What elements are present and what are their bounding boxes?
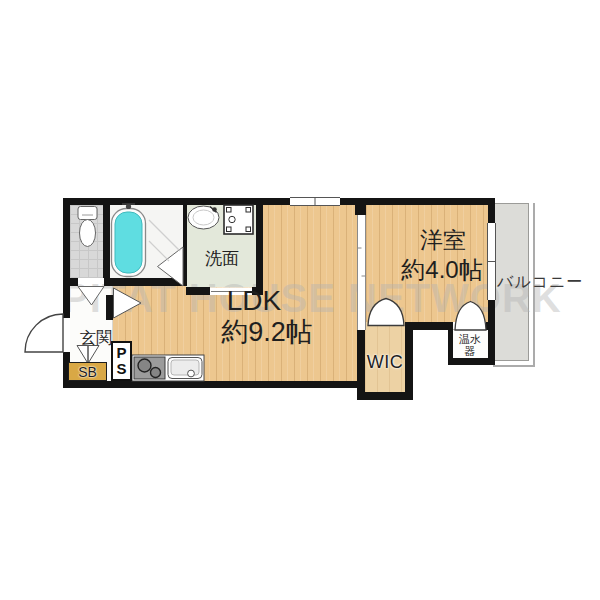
- floor-plan: PITAT HOUSE NETWORK: [0, 0, 600, 600]
- wall: [448, 330, 453, 358]
- wall: [357, 392, 413, 400]
- ldk-size-label: 約9.2帖: [221, 314, 313, 350]
- window: [290, 197, 340, 206]
- pipe-space-label-p: P: [116, 345, 126, 361]
- wall: [186, 287, 210, 295]
- wall: [355, 198, 366, 215]
- wall: [183, 205, 187, 286]
- western-room-label: 洋室: [420, 225, 466, 256]
- window: [487, 223, 496, 300]
- balcony-label: バルコニー: [497, 272, 584, 293]
- wall: [405, 322, 453, 330]
- wall: [106, 295, 113, 320]
- western-room-size-label: 約4.0帖: [401, 254, 482, 286]
- wall: [256, 198, 263, 295]
- ldk-label: LDK: [227, 285, 281, 317]
- washroom-label: 洗面: [205, 247, 239, 270]
- wall: [357, 330, 365, 400]
- toilet-room-floor: [70, 205, 103, 278]
- wall: [104, 278, 186, 286]
- shoe-box-label: SB: [78, 364, 97, 380]
- wic-label: WIC: [367, 352, 404, 373]
- wall: [63, 198, 70, 388]
- wall: [488, 300, 495, 365]
- bathroom-floor: [110, 205, 183, 278]
- wall: [63, 381, 365, 388]
- wall: [103, 205, 110, 278]
- shoe-box: SB: [68, 362, 107, 381]
- pipe-space: P S: [111, 341, 132, 381]
- wall: [488, 198, 495, 223]
- wall: [405, 322, 413, 400]
- entrance-door-opening: [63, 318, 70, 352]
- wall: [70, 278, 78, 286]
- pipe-space-label-s: S: [116, 361, 126, 377]
- entrance-label: 玄関: [80, 328, 112, 349]
- sliding-door: [357, 215, 366, 330]
- entrance-door-arc-icon: [25, 314, 63, 352]
- wall: [63, 198, 495, 205]
- water-heater-label-line2: 器: [465, 344, 476, 359]
- balcony-outer-line: [493, 365, 535, 367]
